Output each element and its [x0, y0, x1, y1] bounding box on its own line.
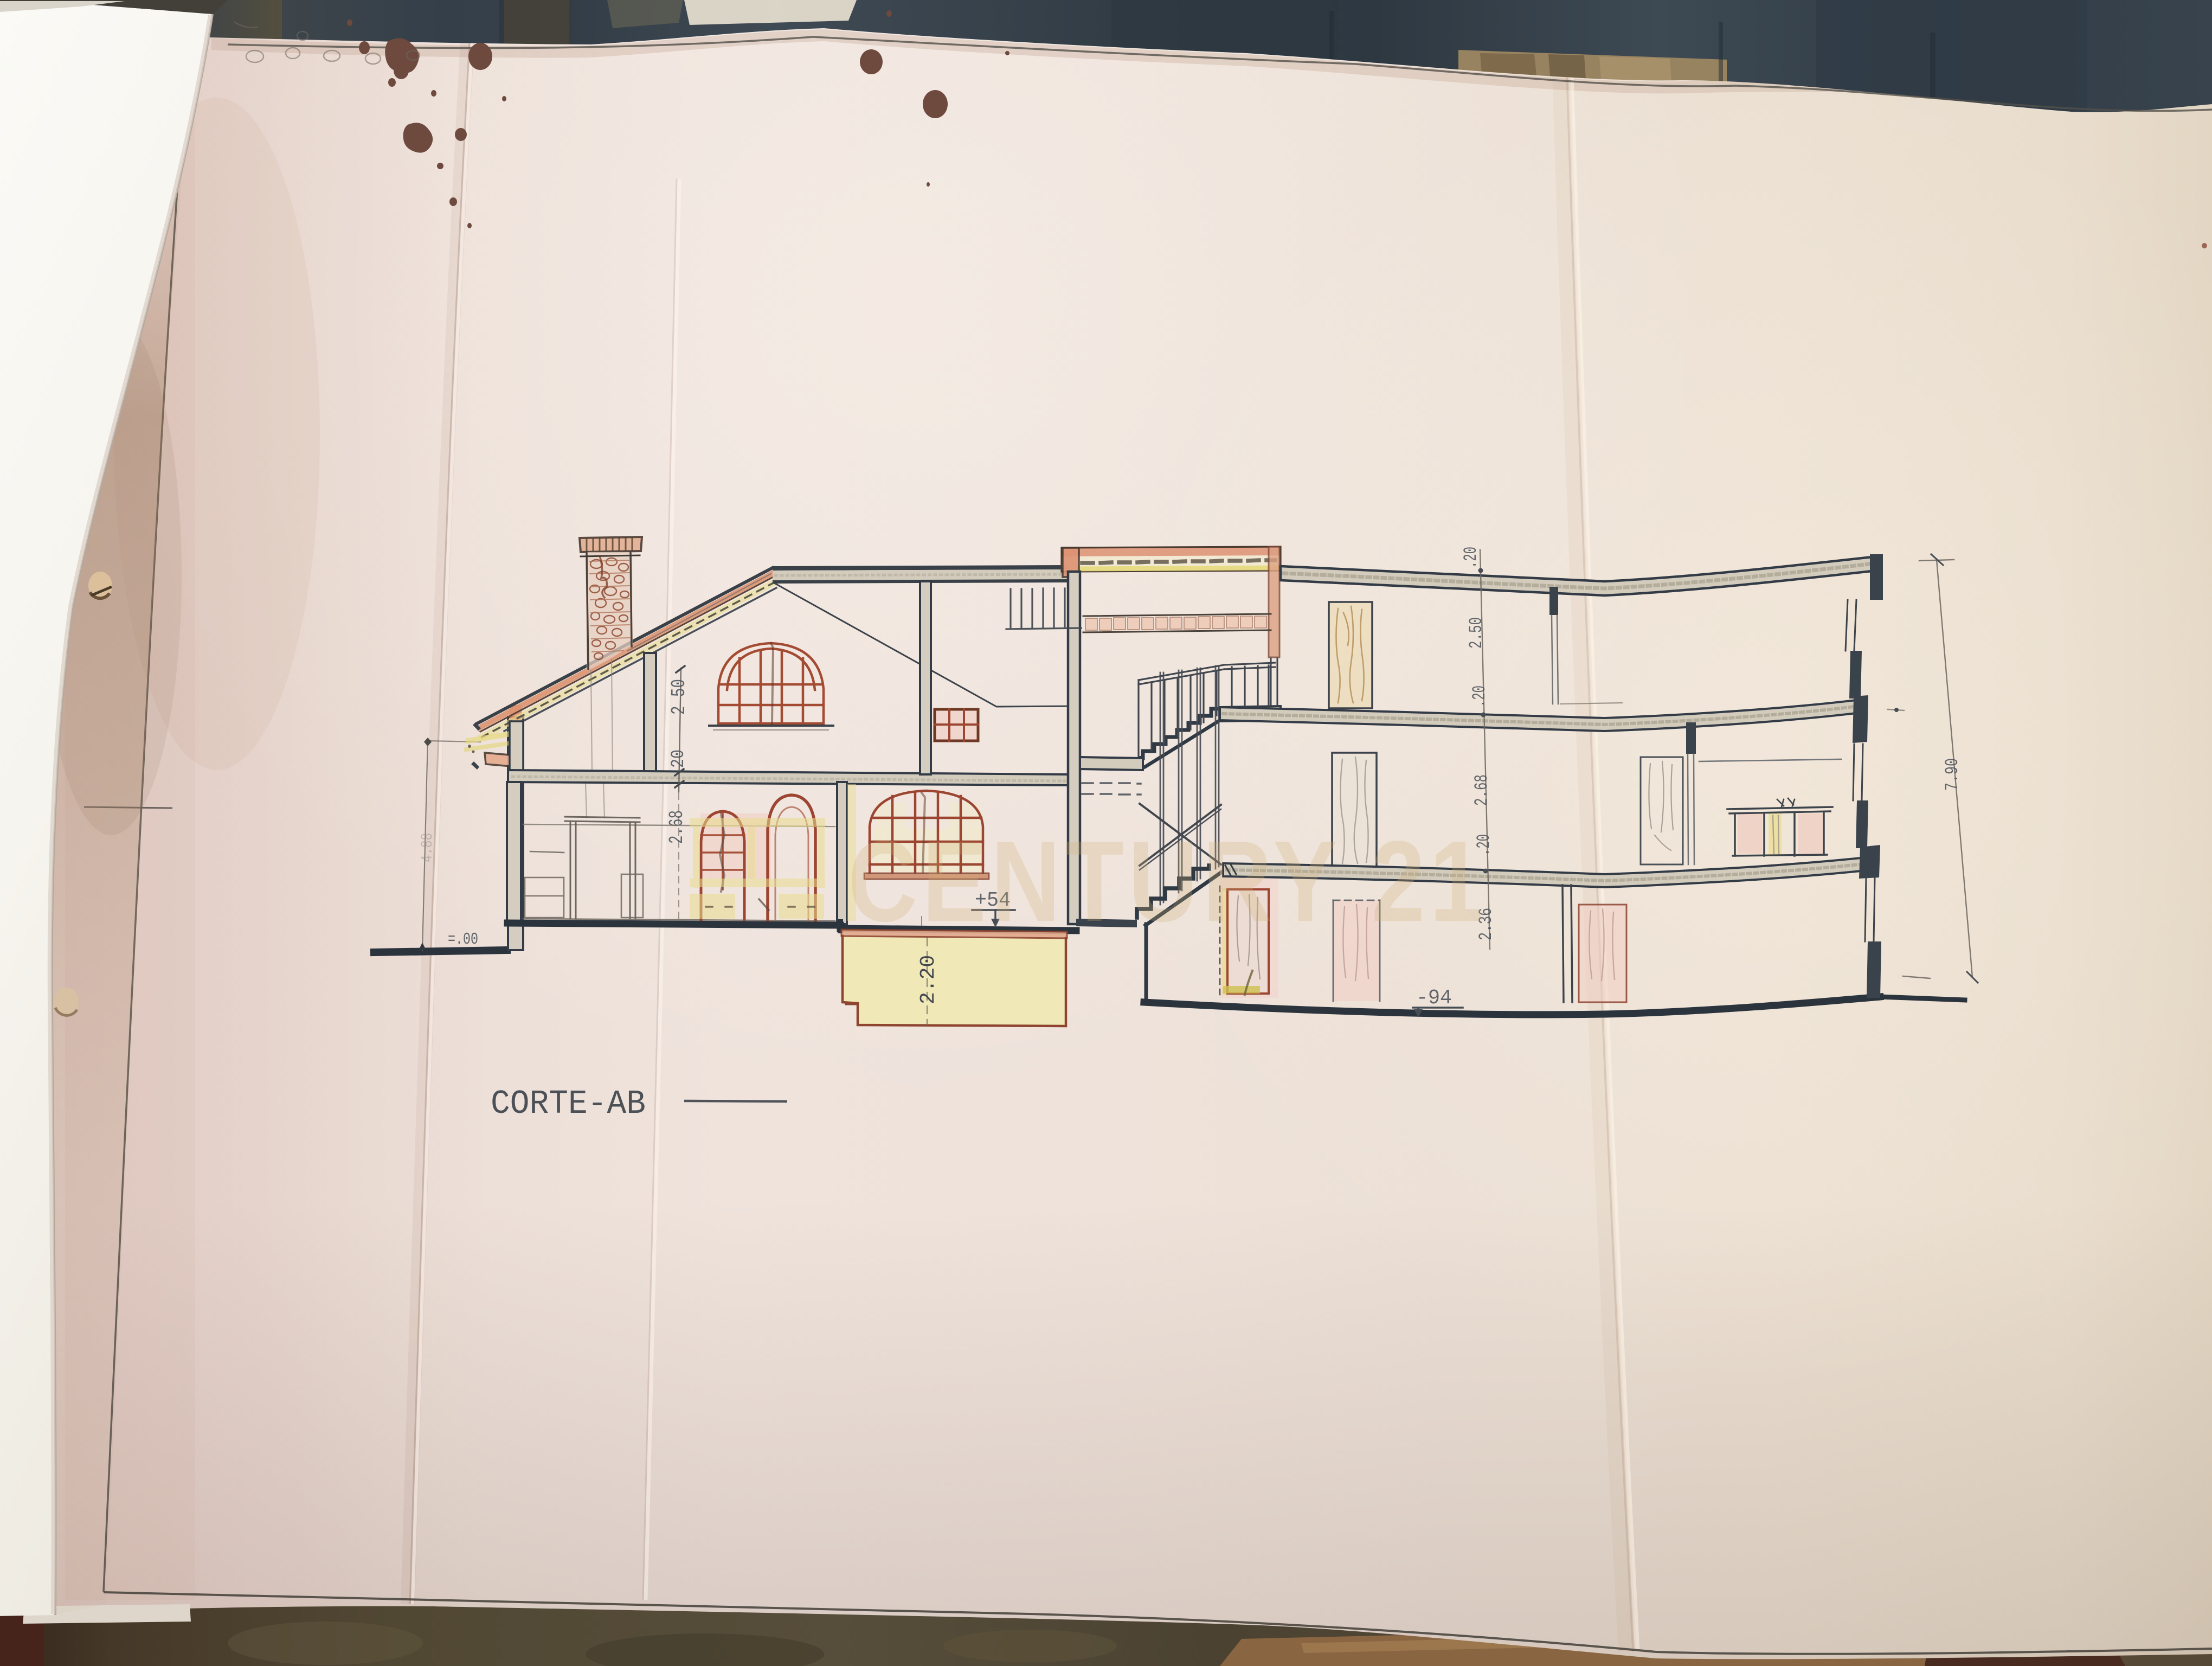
svg-text:CORTE-AB: CORTE-AB [491, 1085, 646, 1123]
svg-text:20: 20 [668, 749, 689, 768]
svg-text:2.68: 2.68 [666, 810, 688, 844]
svg-text:2.20: 2.20 [917, 955, 940, 1004]
svg-text:2 50: 2 50 [668, 679, 690, 715]
svg-text:-94: -94 [1416, 986, 1452, 1010]
svg-text:CENTURY 21: CENTURY 21 [848, 817, 1488, 945]
svg-text:.20: .20 [1461, 547, 1482, 568]
svg-text:2.50: 2.50 [1467, 617, 1487, 649]
svg-text:=.00: =.00 [448, 930, 478, 949]
svg-text:7.90: 7.90 [1943, 758, 1963, 791]
svg-text:.20: .20 [1470, 685, 1490, 707]
svg-text:4.88: 4.88 [419, 833, 437, 862]
svg-text:2.68: 2.68 [1472, 774, 1493, 806]
